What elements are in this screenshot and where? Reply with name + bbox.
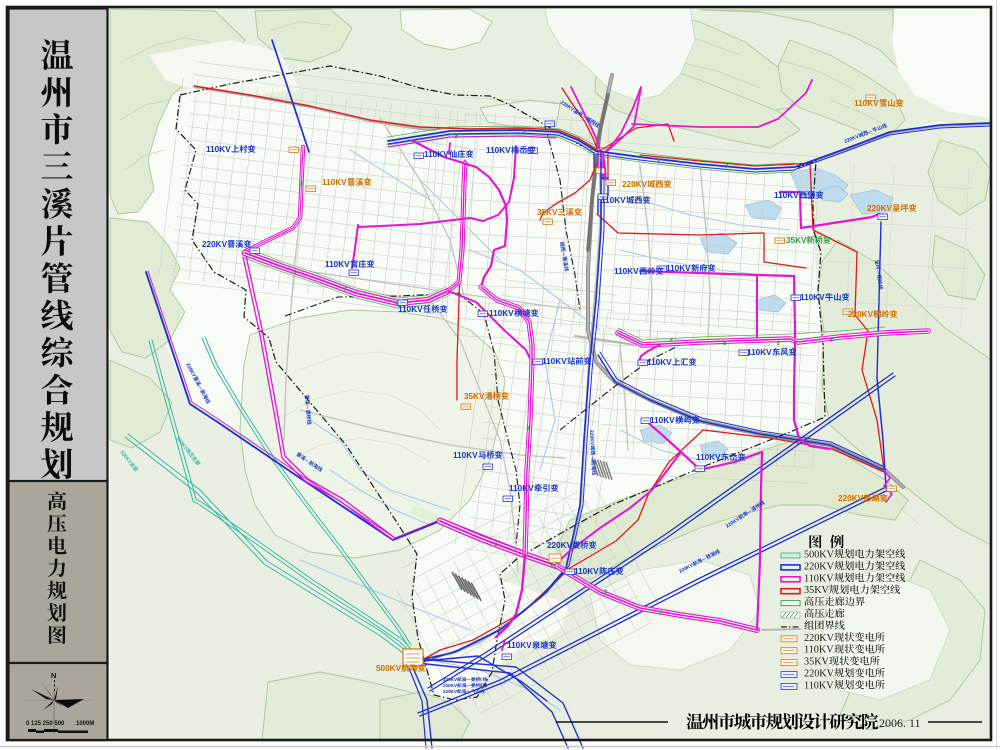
- svg-text:35KV: 35KV: [464, 392, 485, 401]
- svg-text:220KV: 220KV: [804, 669, 835, 680]
- svg-text:500KV: 500KV: [376, 664, 402, 673]
- svg-text:110KV: 110KV: [650, 416, 675, 425]
- svg-text:220KV: 220KV: [622, 180, 648, 189]
- svg-text:110KV: 110KV: [453, 451, 478, 460]
- svg-text:110KV: 110KV: [424, 150, 449, 159]
- svg-text:110KV: 110KV: [542, 357, 567, 366]
- svg-text:220KV: 220KV: [443, 677, 458, 682]
- svg-text:1000M: 1000M: [76, 721, 94, 727]
- svg-text:220KV: 220KV: [804, 561, 835, 572]
- svg-text:110KV: 110KV: [800, 293, 825, 302]
- svg-text:220KV: 220KV: [443, 689, 458, 694]
- svg-text:2006. 11: 2006. 11: [879, 716, 921, 730]
- svg-text:110KV: 110KV: [509, 484, 534, 493]
- svg-text:0 125 250 500: 0 125 250 500: [26, 721, 65, 727]
- svg-text:220KV: 220KV: [443, 683, 458, 688]
- svg-text:110KV: 110KV: [666, 264, 691, 273]
- svg-text:110KV: 110KV: [696, 453, 721, 462]
- svg-text:110KV: 110KV: [601, 196, 626, 205]
- svg-text:110KV: 110KV: [489, 309, 514, 318]
- svg-text:220KV: 220KV: [838, 494, 864, 503]
- svg-text:110KV: 110KV: [774, 191, 799, 200]
- svg-text:110KV: 110KV: [486, 146, 511, 155]
- svg-text:110KV: 110KV: [804, 573, 834, 584]
- svg-text:110KV: 110KV: [574, 567, 599, 576]
- svg-text:110KV: 110KV: [507, 641, 532, 650]
- svg-text:500KV: 500KV: [804, 550, 835, 561]
- svg-text:220KV: 220KV: [804, 633, 835, 644]
- svg-text:35KV: 35KV: [804, 657, 830, 668]
- svg-text:110KV: 110KV: [854, 99, 879, 108]
- svg-text:35KV: 35KV: [537, 208, 558, 217]
- svg-text:220KV: 220KV: [202, 240, 228, 249]
- svg-text:220KV: 220KV: [547, 541, 573, 550]
- svg-text:220KV: 220KV: [867, 204, 893, 213]
- svg-text:220KV: 220KV: [588, 430, 595, 446]
- svg-text:110KV: 110KV: [398, 305, 423, 314]
- svg-text:220KV: 220KV: [848, 310, 874, 319]
- svg-text:110KV: 110KV: [647, 358, 672, 367]
- svg-text:110KV: 110KV: [325, 260, 350, 269]
- svg-text:110KV: 110KV: [804, 680, 834, 691]
- svg-text:110KV: 110KV: [614, 267, 639, 276]
- svg-text:110KV: 110KV: [804, 645, 834, 656]
- svg-text:35KV: 35KV: [786, 236, 807, 245]
- svg-text:35KV: 35KV: [804, 585, 830, 596]
- svg-text:110KV: 110KV: [206, 145, 231, 154]
- svg-text:110KV: 110KV: [322, 178, 347, 187]
- svg-text:N: N: [51, 671, 56, 680]
- svg-text:110KV: 110KV: [747, 348, 772, 357]
